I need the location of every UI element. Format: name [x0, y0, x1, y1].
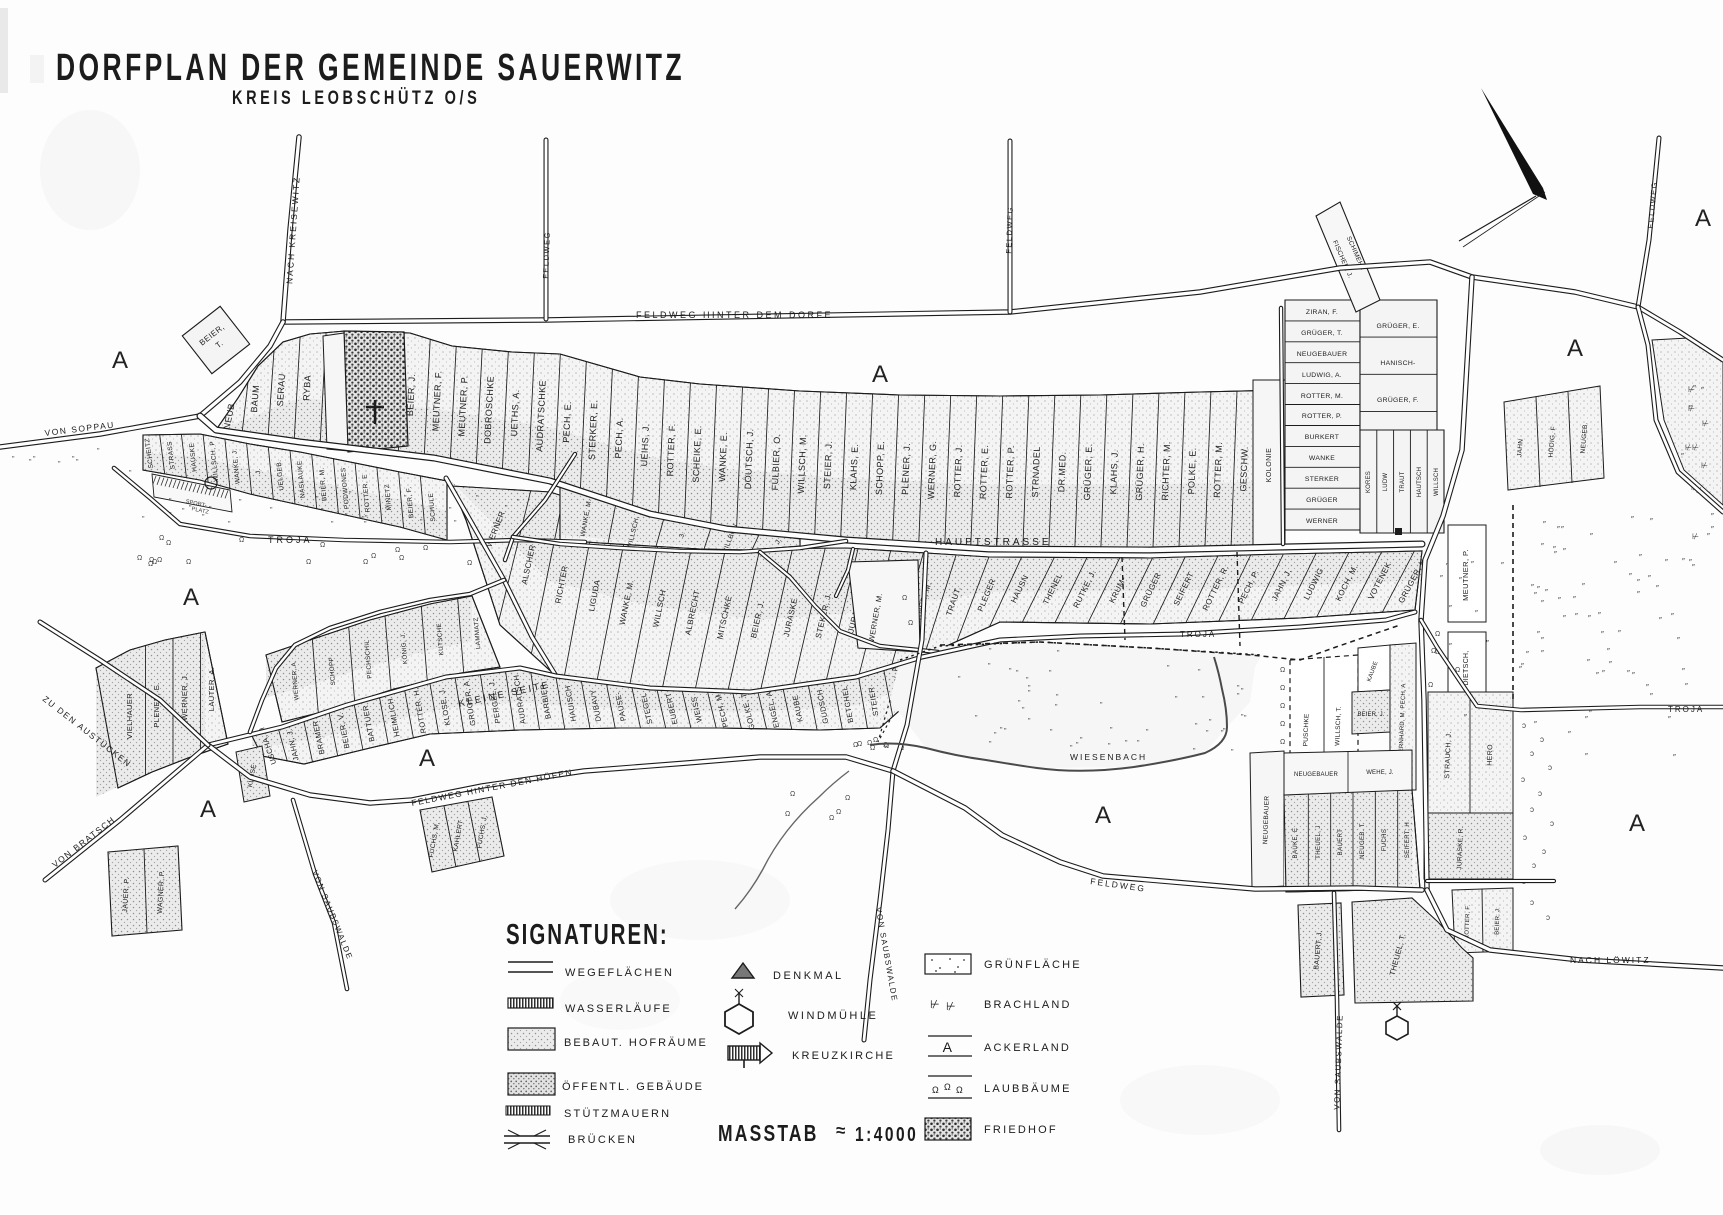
svg-text:BEIER, J.: BEIER, J. — [1495, 907, 1502, 935]
svg-text:WERNER: WERNER — [1306, 518, 1338, 525]
svg-text:⊬: ⊬ — [1702, 419, 1709, 428]
svg-text:Ω: Ω — [423, 545, 428, 552]
svg-text:PLENER, J.: PLENER, J. — [900, 443, 912, 495]
svg-text:GRÜNFLÄCHE: GRÜNFLÄCHE — [984, 959, 1082, 971]
svg-text:″: ″ — [1632, 671, 1635, 680]
svg-text:″: ″ — [1668, 715, 1671, 724]
svg-text:Ω: Ω — [845, 795, 850, 802]
svg-text:ɔ: ɔ — [1546, 913, 1550, 922]
svg-text:″: ″ — [1475, 609, 1478, 618]
svg-text:KREUZKIRCHE: KREUZKIRCHE — [792, 1050, 895, 1062]
svg-text:WILLSCH, T.: WILLSCH, T. — [1334, 706, 1342, 746]
svg-text:A: A — [1567, 335, 1583, 362]
svg-text:A: A — [112, 347, 128, 374]
svg-text:Ω: Ω — [239, 537, 244, 544]
svg-text:PECH, A.: PECH, A. — [613, 417, 625, 459]
svg-text:ROTTER, F.: ROTTER, F. — [1464, 904, 1471, 939]
svg-text:WIESENBACH: WIESENBACH — [1070, 752, 1147, 762]
svg-text:Ω: Ω — [166, 540, 171, 547]
svg-text:HANISCH-: HANISCH- — [1380, 360, 1415, 367]
svg-text:HERO: HERO — [1487, 744, 1495, 766]
svg-text:″: ″ — [1639, 553, 1642, 562]
svg-text:″: ″ — [1673, 753, 1676, 762]
svg-text:″: ″ — [1449, 604, 1452, 613]
svg-text:ɔ: ɔ — [1530, 805, 1534, 814]
svg-text:GRÜGER, E.: GRÜGER, E. — [1376, 322, 1419, 330]
svg-text:MASSTAB: MASSTAB — [718, 1122, 819, 1147]
svg-text:⊬: ⊬ — [1692, 532, 1699, 541]
svg-text:⊬: ⊬ — [946, 1001, 960, 1013]
svg-text:″: ″ — [1471, 560, 1474, 569]
svg-text:″: ″ — [1707, 532, 1710, 541]
svg-text:″: ″ — [1585, 715, 1588, 724]
svg-text:Ω: Ω — [956, 1085, 964, 1095]
svg-text:″: ″ — [1618, 629, 1621, 638]
svg-text:″: ″ — [1701, 386, 1704, 395]
svg-text:BRÜCKEN: BRÜCKEN — [568, 1134, 637, 1146]
svg-text:″: ″ — [1665, 558, 1668, 567]
svg-text:Ω: Ω — [1280, 721, 1285, 728]
svg-text:″: ″ — [1561, 525, 1564, 534]
svg-text:DORFPLAN DER GEMEINDE SAUERWIT: DORFPLAN DER GEMEINDE SAUERWITZ — [56, 45, 685, 88]
svg-text:Ω: Ω — [186, 559, 191, 566]
svg-text:Ω: Ω — [149, 557, 154, 564]
svg-text:″: ″ — [1614, 560, 1617, 569]
svg-text:″: ″ — [1543, 520, 1546, 529]
svg-text:A: A — [1695, 205, 1711, 232]
svg-text:FELDWEG: FELDWEG — [541, 231, 552, 279]
svg-text:PECH, E.: PECH, E. — [561, 401, 573, 443]
svg-text:″: ″ — [1648, 574, 1651, 583]
svg-text:″: ″ — [1519, 665, 1522, 674]
svg-text:⊬: ⊬ — [1685, 443, 1692, 452]
svg-text:UEIHS, J.: UEIHS, J. — [639, 423, 651, 467]
svg-text:THEUEL, J: THEUEL, J — [1316, 825, 1322, 859]
svg-text:″: ″ — [1446, 562, 1449, 571]
svg-text:BURKERT: BURKERT — [1305, 434, 1339, 441]
svg-text:TROJA: TROJA — [268, 535, 313, 545]
svg-text:ɔ: ɔ — [1530, 749, 1534, 758]
svg-text:″: ″ — [1659, 616, 1662, 625]
svg-text:SERAU: SERAU — [275, 373, 287, 407]
svg-text:RYBA: RYBA — [301, 375, 312, 401]
svg-text:″: ″ — [1609, 660, 1612, 669]
svg-text:GRÜGER, F.: GRÜGER, F. — [1377, 396, 1419, 404]
svg-text:Ω: Ω — [159, 535, 164, 542]
svg-text:″: ″ — [1685, 682, 1688, 691]
svg-text:⊬: ⊬ — [1692, 443, 1699, 452]
svg-text:DENKMAL: DENKMAL — [773, 970, 844, 982]
svg-text:ɔ: ɔ — [1521, 775, 1525, 784]
svg-text:″: ″ — [1637, 578, 1640, 587]
svg-text:″: ″ — [1557, 525, 1560, 534]
svg-text:⊬: ⊬ — [1688, 385, 1695, 394]
svg-text:Ω: Ω — [873, 737, 878, 744]
svg-text:NEUGEB. T: NEUGEB. T — [1360, 823, 1366, 859]
svg-text:″: ″ — [1541, 636, 1544, 645]
svg-text:ROTTER, J.: ROTTER, J. — [952, 444, 964, 497]
svg-text:Ω: Ω — [306, 559, 311, 566]
svg-text:A: A — [419, 745, 435, 772]
svg-text:″: ″ — [1629, 572, 1632, 581]
svg-text:A: A — [872, 361, 888, 388]
svg-text:″: ″ — [1601, 630, 1604, 639]
svg-text:WILLSCH: WILLSCH — [1434, 468, 1440, 496]
svg-text:Ω: Ω — [836, 809, 841, 816]
svg-text:″: ″ — [1541, 542, 1544, 551]
svg-text:″: ″ — [1449, 642, 1452, 651]
svg-text:STRNADEL: STRNADEL — [1030, 446, 1042, 498]
svg-text:GRÜGER, T.: GRÜGER, T. — [1301, 329, 1343, 337]
svg-text:KOLONIE: KOLONIE — [1266, 448, 1273, 483]
svg-text:Ω: Ω — [363, 559, 368, 566]
svg-text:ROTTER, M.: ROTTER, M. — [1212, 442, 1224, 498]
svg-text:STERKER: STERKER — [1305, 476, 1339, 483]
svg-text:Ω: Ω — [944, 1082, 952, 1092]
svg-text:″: ″ — [1537, 630, 1540, 639]
svg-text:FRIEDHOF: FRIEDHOF — [984, 1124, 1058, 1136]
svg-text:ÖFFENTL. GEBÄUDE: ÖFFENTL. GEBÄUDE — [562, 1081, 704, 1093]
svg-text:Ω: Ω — [320, 542, 325, 549]
svg-text:BEBAUT. HOFRÄUME: BEBAUT. HOFRÄUME — [564, 1037, 708, 1049]
svg-text:″: ″ — [1711, 512, 1714, 521]
svg-text:″: ″ — [1631, 515, 1634, 524]
svg-text:Ω: Ω — [1428, 682, 1433, 689]
svg-text:″: ″ — [1650, 517, 1653, 526]
svg-text:ɔ: ɔ — [1532, 861, 1536, 870]
svg-text:Ω: Ω — [1280, 685, 1285, 692]
svg-text:KLAHS, J.: KLAHS, J. — [1108, 449, 1120, 494]
svg-text:″: ″ — [1588, 614, 1591, 623]
svg-text:″: ″ — [1677, 636, 1680, 645]
svg-text:ZIRAN, F.: ZIRAN, F. — [1306, 309, 1338, 316]
svg-text:″: ″ — [1692, 563, 1695, 572]
svg-text:ɔ: ɔ — [1548, 763, 1552, 772]
svg-text:″: ″ — [1558, 596, 1561, 605]
svg-text:″: ″ — [1671, 612, 1674, 621]
svg-text:NEUGEBAUER: NEUGEBAUER — [1297, 351, 1348, 358]
svg-text:Ω: Ω — [1280, 667, 1285, 674]
svg-text:TROJA: TROJA — [1668, 705, 1704, 714]
svg-text:VIELHAUER: VIELHAUER — [125, 693, 134, 739]
svg-text:″: ″ — [1537, 585, 1540, 594]
svg-text:A: A — [943, 1039, 954, 1055]
svg-text:1:4000: 1:4000 — [855, 1123, 918, 1145]
svg-text:″: ″ — [1602, 669, 1605, 678]
svg-text:″: ″ — [1590, 532, 1593, 541]
svg-text:FELDWEG HINTER DEM DORFE: FELDWEG HINTER DEM DORFE — [636, 310, 833, 320]
svg-text:ɔ: ɔ — [1530, 898, 1534, 907]
svg-text:″: ″ — [1464, 713, 1467, 722]
svg-text:FELDWEG: FELDWEG — [1004, 206, 1015, 254]
svg-text:″: ″ — [1568, 730, 1571, 739]
svg-text:″: ″ — [1446, 751, 1449, 760]
svg-text:WASSERLÄUFE: WASSERLÄUFE — [565, 1003, 672, 1015]
svg-text:Ω: Ω — [157, 557, 162, 564]
svg-text:Ω: Ω — [853, 742, 858, 749]
svg-text:FUCHS: FUCHS — [1382, 829, 1388, 852]
svg-text:″: ″ — [1598, 611, 1601, 620]
svg-text:NEUGEBAUER: NEUGEBAUER — [1294, 772, 1338, 778]
svg-text:GESCHW.: GESCHW. — [1238, 446, 1250, 492]
svg-text:″: ″ — [1596, 671, 1599, 680]
svg-text:J.: J. — [255, 468, 263, 475]
svg-text:STÜTZMAUERN: STÜTZMAUERN — [564, 1108, 671, 1120]
svg-text:SEIFERT, H: SEIFERT, H — [1405, 822, 1411, 858]
svg-text:ROTTER, P.: ROTTER, P. — [1004, 445, 1016, 499]
svg-text:KREIS LEOBSCHÜTZ O/S: KREIS LEOBSCHÜTZ O/S — [232, 86, 480, 109]
svg-text:A: A — [200, 796, 216, 823]
svg-text:Ω: Ω — [1280, 703, 1285, 710]
svg-text:″: ″ — [1646, 683, 1649, 692]
svg-text:KORES: KORES — [1366, 471, 1372, 493]
svg-text:DIETSCH,: DIETSCH, — [1463, 650, 1470, 685]
svg-text:″: ″ — [1440, 574, 1443, 583]
svg-text:″: ″ — [1585, 752, 1588, 761]
svg-text:″: ″ — [1656, 584, 1659, 593]
svg-text:ɔ: ɔ — [1550, 819, 1554, 828]
svg-text:WEGEFLÄCHEN: WEGEFLÄCHEN — [565, 967, 674, 979]
svg-text:A: A — [183, 584, 199, 611]
svg-text:″: ″ — [1531, 583, 1534, 592]
svg-text:Ω: Ω — [137, 555, 142, 562]
svg-text:PUSCHKE: PUSCHKE — [1302, 713, 1310, 747]
svg-text:Ω: Ω — [1280, 739, 1285, 746]
svg-text:″: ″ — [1501, 561, 1504, 570]
svg-text:STEIER, J.: STEIER, J. — [822, 440, 834, 489]
svg-text:LAUBBÄUME: LAUBBÄUME — [984, 1083, 1072, 1095]
svg-text:ɔ: ɔ — [1540, 735, 1544, 744]
svg-text:Ω: Ω — [790, 791, 795, 798]
svg-text:HAUPTSTRASSE: HAUPTSTRASSE — [935, 537, 1052, 548]
svg-text:NACH LÖWITZ: NACH LÖWITZ — [1570, 955, 1651, 965]
svg-text:⊬: ⊬ — [930, 999, 944, 1011]
svg-text:≈: ≈ — [836, 1121, 845, 1140]
svg-text:Ω: Ω — [902, 595, 907, 602]
svg-text:BRACHLAND: BRACHLAND — [984, 999, 1072, 1011]
svg-text:Ω: Ω — [1435, 631, 1440, 638]
svg-text:LUDWIG, A.: LUDWIG, A. — [1302, 372, 1342, 379]
svg-text:WERNER, J.: WERNER, J. — [180, 673, 189, 720]
svg-text:″: ″ — [1545, 588, 1548, 597]
svg-text:POLKE, E.: POLKE, E. — [1186, 447, 1198, 494]
svg-text:WANKE, E.: WANKE, E. — [717, 432, 729, 482]
svg-text:″: ″ — [1534, 720, 1537, 729]
svg-text:ROTTER, P.: ROTTER, P. — [1302, 413, 1342, 420]
svg-text:″: ″ — [1573, 595, 1576, 604]
svg-text:″: ″ — [1650, 692, 1653, 701]
svg-text:″: ″ — [1587, 658, 1590, 667]
svg-text:ɔ: ɔ — [1538, 789, 1542, 798]
svg-text:″: ″ — [1637, 590, 1640, 599]
svg-text:Ω: Ω — [467, 560, 472, 567]
svg-text:DR.MED.: DR.MED. — [1056, 451, 1068, 492]
svg-text:LUDW: LUDW — [1383, 473, 1389, 492]
svg-text:LAUTER, A.: LAUTER, A. — [207, 667, 216, 711]
svg-text:HAUTSCH: HAUTSCH — [1417, 467, 1423, 497]
svg-text:KLAHS, E.: KLAHS, E. — [848, 443, 860, 490]
svg-text:TRAUT: TRAUT — [1400, 471, 1406, 492]
svg-text:Ω: Ω — [932, 1085, 940, 1095]
svg-text:Ω: Ω — [908, 620, 913, 627]
svg-text:″: ″ — [1681, 452, 1684, 461]
svg-text:″: ″ — [1554, 550, 1557, 559]
svg-text:″: ″ — [1627, 669, 1630, 678]
svg-text:″: ″ — [1486, 639, 1489, 648]
svg-text:″: ″ — [1541, 649, 1544, 658]
svg-text:ROTTER, M.: ROTTER, M. — [1301, 393, 1343, 400]
svg-text:WEHE, J.: WEHE, J. — [1366, 770, 1394, 776]
svg-text:″: ″ — [1607, 647, 1610, 656]
svg-text:ROTTER, E.: ROTTER, E. — [978, 444, 990, 499]
svg-text:Ω: Ω — [829, 815, 834, 822]
svg-text:BEIER, J.: BEIER, J. — [1358, 712, 1385, 718]
svg-text:Ω: Ω — [371, 553, 376, 560]
svg-text:Ω: Ω — [395, 547, 400, 554]
svg-text:″: ″ — [1582, 582, 1585, 591]
svg-text:″: ″ — [1526, 650, 1529, 659]
svg-text:″: ″ — [1459, 576, 1462, 585]
svg-text:A: A — [1629, 810, 1645, 837]
svg-text:PLENER, E.: PLENER, E. — [152, 682, 161, 727]
svg-text:SIGNATUREN:: SIGNATUREN: — [506, 919, 669, 951]
svg-text:″: ″ — [1534, 591, 1537, 600]
svg-text:″: ″ — [1563, 614, 1566, 623]
svg-text:Ω: Ω — [1431, 648, 1436, 655]
svg-text:″: ″ — [1563, 547, 1566, 556]
svg-text:MEUTNER, P.: MEUTNER, P. — [1461, 549, 1470, 601]
svg-text:″: ″ — [1682, 557, 1685, 566]
svg-text:ACKERLAND: ACKERLAND — [984, 1042, 1071, 1054]
svg-text:Ω: Ω — [785, 811, 790, 818]
svg-text:A: A — [1095, 802, 1111, 829]
svg-text:BAUKE, E: BAUKE, E — [1293, 828, 1299, 859]
svg-text:Ω: Ω — [399, 555, 404, 562]
svg-text:WINDMÜHLE: WINDMÜHLE — [788, 1010, 878, 1022]
svg-text:Ω: Ω — [870, 745, 875, 752]
svg-text:WANKE: WANKE — [1309, 455, 1335, 462]
svg-text:″: ″ — [1682, 667, 1685, 676]
svg-text:BAUERT: BAUERT — [1338, 829, 1344, 856]
svg-text:⊬: ⊬ — [1688, 404, 1695, 413]
svg-text:ɔ: ɔ — [1523, 833, 1527, 842]
svg-text:GRÜGER: GRÜGER — [1306, 496, 1338, 504]
svg-text:″: ″ — [1711, 525, 1714, 534]
svg-text:⊬: ⊬ — [1701, 461, 1708, 470]
svg-text:TROJA: TROJA — [1180, 630, 1216, 639]
svg-text:″: ″ — [1541, 599, 1544, 608]
svg-text:″: ″ — [1575, 612, 1578, 621]
svg-text:ɔ: ɔ — [1542, 847, 1546, 856]
svg-text:ɔ: ɔ — [1522, 721, 1526, 730]
